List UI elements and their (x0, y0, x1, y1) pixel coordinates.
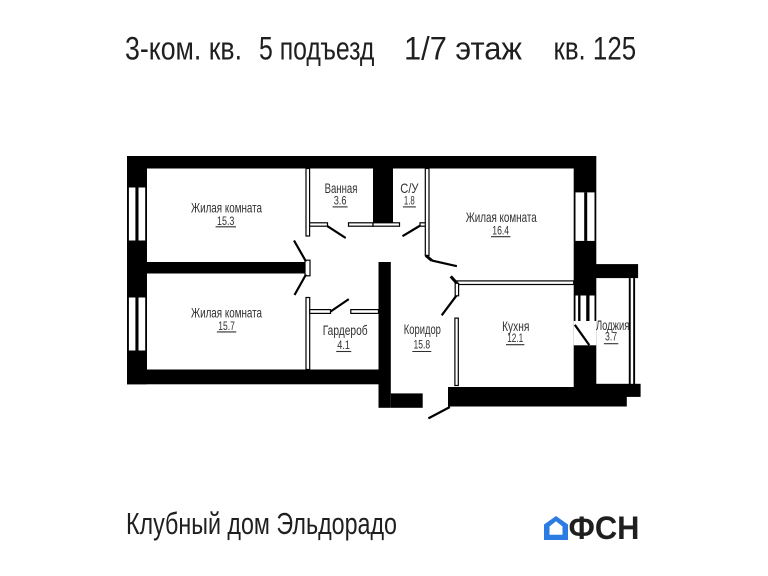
svg-text:Гардероб: Гардероб (323, 323, 368, 338)
svg-text:Коридор: Коридор (404, 322, 441, 337)
svg-text:15.3: 15.3 (217, 214, 235, 228)
svg-text:1/7 этаж: 1/7 этаж (404, 31, 523, 67)
svg-text:5 подъезд: 5 подъезд (259, 31, 375, 67)
svg-text:кв. 125: кв. 125 (554, 31, 637, 67)
svg-text:12.1: 12.1 (507, 331, 523, 345)
svg-text:ФСН: ФСН (569, 510, 640, 546)
svg-text:15.7: 15.7 (218, 319, 235, 333)
svg-text:3.7: 3.7 (605, 329, 617, 343)
svg-text:15.8: 15.8 (414, 337, 431, 351)
svg-text:3.6: 3.6 (334, 194, 347, 208)
svg-text:16.4: 16.4 (492, 224, 509, 238)
svg-text:4.1: 4.1 (337, 338, 350, 352)
svg-text:1.8: 1.8 (404, 194, 415, 208)
svg-text:3-ком. кв.: 3-ком. кв. (125, 31, 242, 67)
svg-text:Клубный дом Эльдорадо: Клубный дом Эльдорадо (126, 506, 397, 541)
